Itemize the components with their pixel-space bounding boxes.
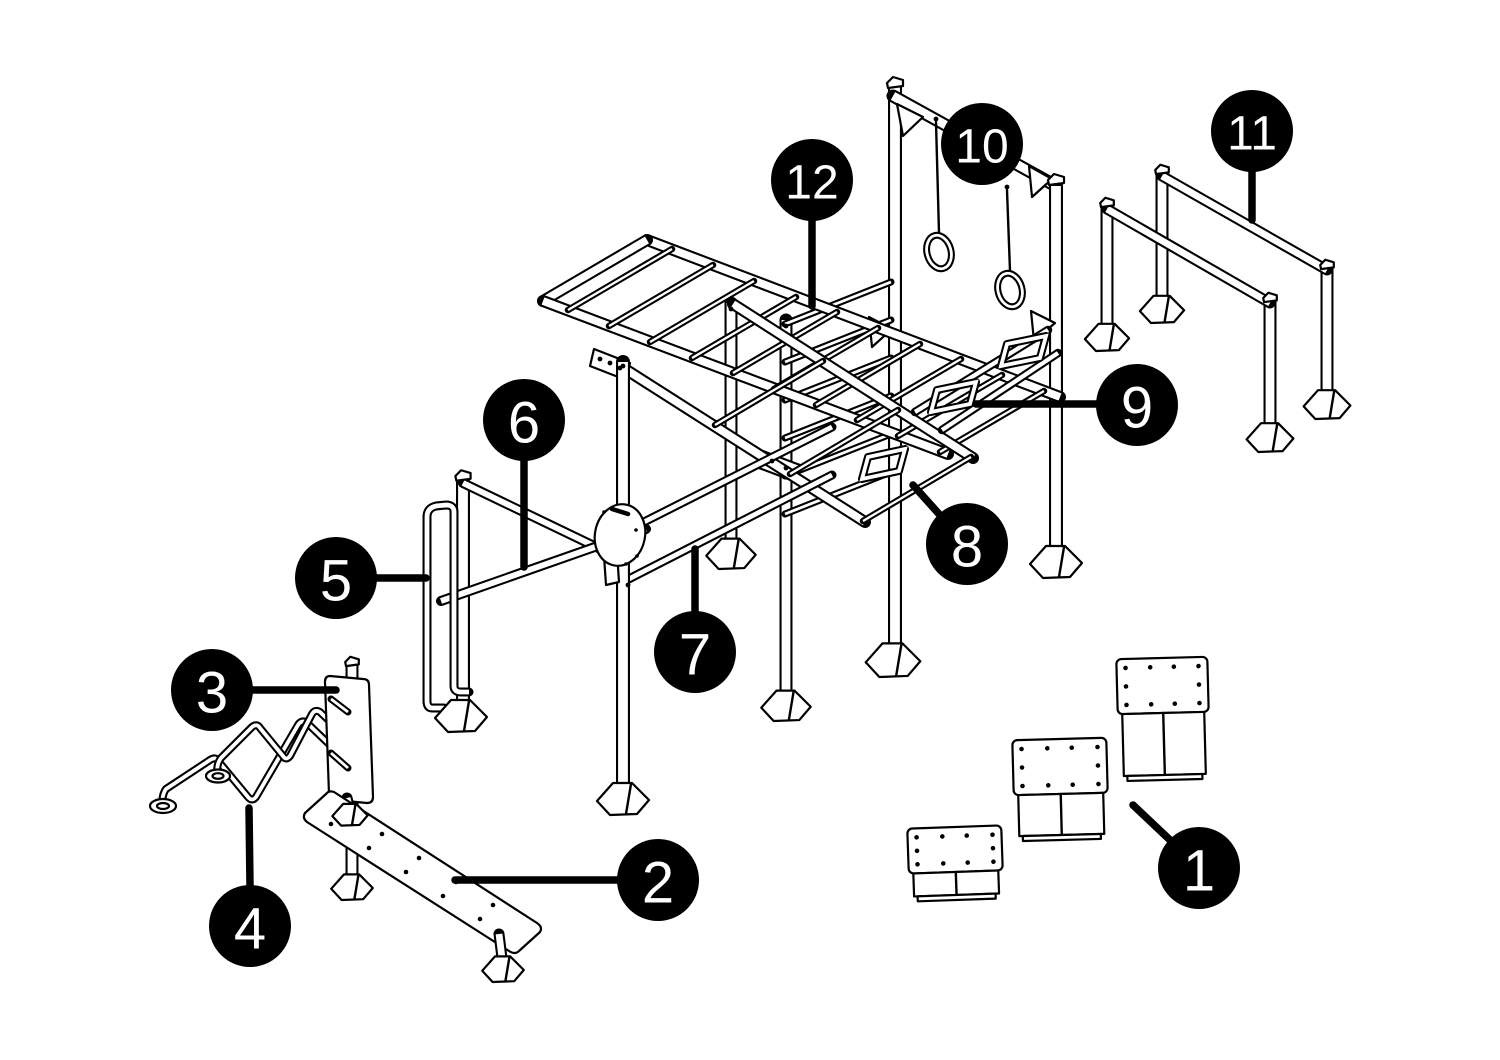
callout-number: 6 [508,391,540,456]
block-top-plate [1012,738,1107,795]
callout-number: 1 [1183,839,1215,904]
callout-leader-line [249,808,250,886]
callout-7: 7 [654,549,736,693]
parts-diagram-page: 123456789101112 [0,0,1500,1060]
callout-6: 6 [483,379,565,567]
bolt-dot [1005,185,1010,190]
callout-number: 3 [196,661,228,726]
callout-number: 7 [679,623,711,688]
foundation-block [1012,738,1109,841]
disc-rim-dot [635,554,639,558]
tube-flange-left-hub [157,803,169,809]
pyramid-foot [761,691,810,721]
bench-screw [404,870,409,875]
pyramid-foot [706,539,755,569]
foundation-block [1116,657,1210,781]
pyramid-foot [866,643,921,677]
post-cap [1100,198,1114,207]
ring-strap-right [1007,190,1010,271]
bolt-dot [598,357,603,362]
callout-11: 11 [1211,90,1293,220]
callout-1: 1 [1133,805,1240,909]
diagram-canvas: 123456789101112 [0,0,1500,1060]
bench-leg-lower-core [499,934,502,958]
disc-rim-dot [634,528,638,532]
pyramid-foot [1304,390,1351,419]
block-top-plate [907,825,1003,873]
post-cap [887,77,903,88]
back-pad-plate [325,676,373,803]
bolt-dot [608,361,613,366]
callout-number: 5 [320,549,352,614]
callout-number: 9 [1121,376,1153,441]
disc-rim-dot [602,510,606,514]
bolt-dot [934,117,939,122]
callout-number: 4 [234,897,266,962]
foundation-block [907,825,1003,901]
bolt-dot [770,459,775,464]
block-top-plate [1116,657,1208,714]
pyramid-foot [1140,296,1184,323]
ring-strap-left [936,122,939,233]
callout-leader-line [913,485,939,514]
block-divider [956,872,957,895]
bench-screw [380,832,385,837]
post-cap [1155,165,1169,174]
pyramid-foot [1247,423,1294,452]
callout-leader-line [1133,805,1170,840]
pyramid-foot [597,783,649,815]
pyramid-foot [1085,324,1129,351]
callout-12: 12 [771,139,853,306]
block-divider [1061,794,1062,835]
callout-number: 11 [1227,108,1277,161]
post-cap [345,657,359,666]
bolt-dot [621,364,626,369]
bench-screw [478,917,483,922]
bench-screw [417,856,422,861]
callout-5: 5 [295,537,426,619]
block-divider [1163,713,1165,775]
block-base-strip [1127,774,1202,781]
callout-10: 10 [941,103,1023,185]
callout-number: 8 [951,515,983,580]
bolt-dot [729,307,734,312]
post-cap [455,470,470,480]
callout-number: 2 [642,851,674,916]
pyramid-foot [1030,546,1082,578]
callout-4: 4 [209,808,291,967]
pyramid-foot [482,956,524,982]
tube-flange-right-hub [213,773,224,779]
callout-number: 10 [955,121,1008,174]
bench-screw [441,894,446,899]
bench-screw [491,903,496,908]
pyramid-foot [331,874,373,900]
bench-screw [367,846,372,851]
disc-rim-dot [624,562,628,566]
bolt-dot [784,466,789,471]
incline-rail-bottom-core [625,369,865,522]
bench-screw [329,822,334,827]
callout-number: 12 [785,157,838,210]
block-base-strip [1023,834,1101,841]
callout-8: 8 [913,485,1008,585]
bolt-dot [784,324,789,329]
bolt-dot [626,583,631,588]
